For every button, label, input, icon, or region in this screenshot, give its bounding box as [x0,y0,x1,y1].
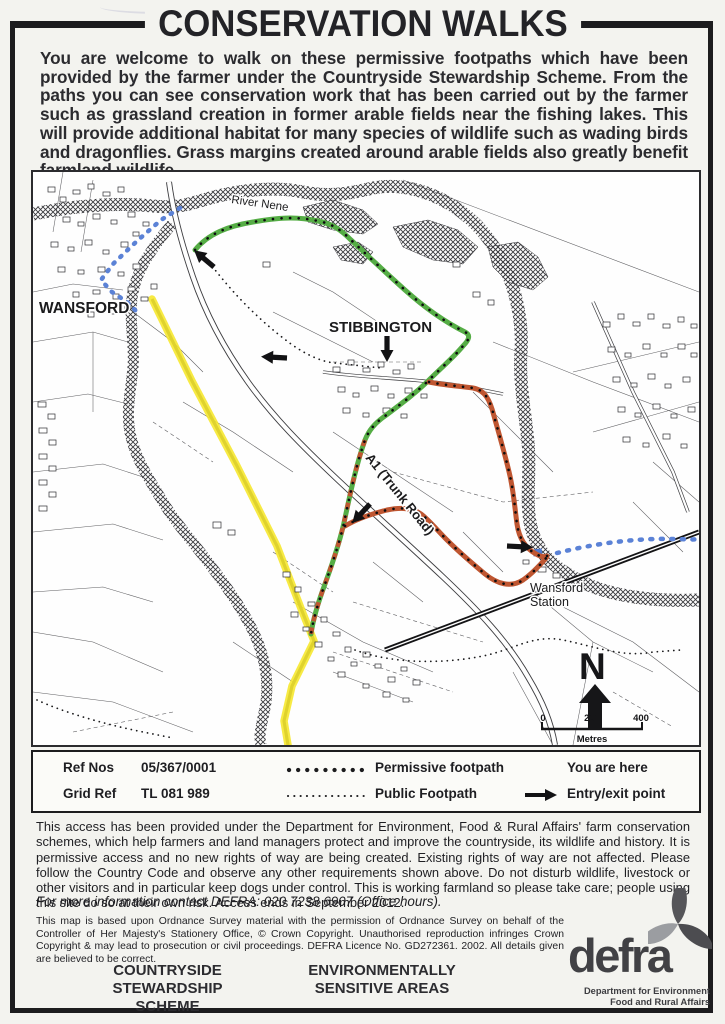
entry-exit-label: Entry/exit point [567,786,665,801]
intro-paragraph: You are welcome to walk on these permiss… [40,49,688,180]
you-are-here-label: You are here [567,760,648,775]
entry-exit-arrow-symbol [525,788,559,802]
public-footpath-label: Public Footpath [375,786,477,801]
environmentally-sensitive-label: ENVIRONMENTALLY SENSITIVE AREAS [292,962,472,998]
permissive-dots-symbol [285,765,365,775]
defra-subtitle-line2: Food and Rural Affairs [610,997,710,1007]
countryside-stewardship-label: COUNTRYSIDE STEWARDSHIP SCHEME [85,962,250,1016]
defra-subtitle-line1: Department for Environment [584,986,710,996]
leaflet-page: CONSERVATION WALKS You are welcome to wa… [0,0,725,1024]
scale-200: 200 [584,713,600,724]
station-label-2: Station [530,595,569,609]
page-title-row: CONSERVATION WALKS [0,3,725,45]
page-title: CONSERVATION WALKS [145,3,581,45]
map-drawing: River Nene WANSFORD STIBBINGTON A1 (Trun… [33,172,699,745]
north-label: N [579,646,606,687]
public-dots-symbol [285,791,369,801]
legend-panel: Ref Nos 05/367/0001 Grid Ref TL 081 989 … [31,750,701,813]
ref-nos-value: 05/367/0001 [141,760,216,775]
stibbington-label: STIBBINGTON [329,319,432,336]
defra-wordmark: defra [568,928,670,983]
grid-ref-value: TL 081 989 [141,786,210,801]
scale-unit: Metres [577,734,608,745]
station-label-1: Wansford [530,581,583,595]
copyright-notice: This map is based upon Ordnance Survey m… [36,916,564,967]
defra-logo: defra Department for Environment Food an… [562,890,712,1012]
ref-nos-label: Ref Nos [63,760,114,775]
grid-ref-label: Grid Ref [63,786,116,801]
wansford-label: WANSFORD [39,300,129,317]
defra-subtitle: Department for Environment Food and Rura… [562,986,710,1008]
permissive-footpath-label: Permissive footpath [375,760,504,775]
map-panel: River Nene WANSFORD STIBBINGTON A1 (Trun… [31,170,701,747]
